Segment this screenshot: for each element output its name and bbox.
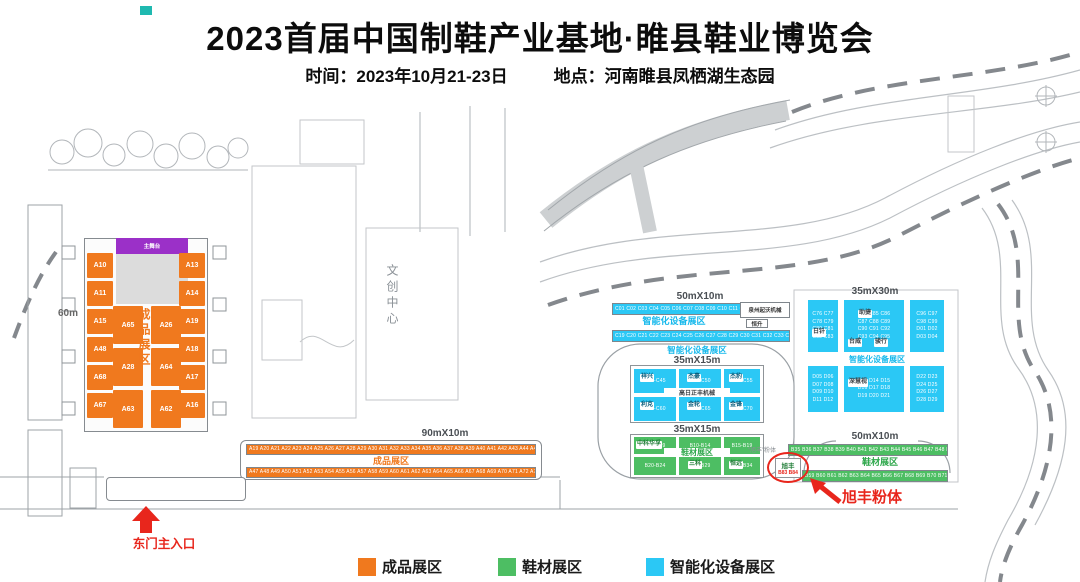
cultural-center-label: 文创中心 bbox=[384, 264, 401, 328]
booth: A10 bbox=[87, 253, 113, 278]
material-strip-zone-label: 鞋材展区 bbox=[838, 457, 922, 467]
exhibitor-chip: 杰豪 bbox=[687, 374, 701, 382]
company-box: 泉州起沃机械 bbox=[740, 302, 790, 318]
finished-swatch bbox=[358, 558, 376, 576]
legend-item-material: 鞋材展区 bbox=[498, 556, 582, 577]
xufeng-highlight-oval bbox=[767, 452, 809, 483]
booth-column: D22 D23 D24 D25 D26 D27 D28 D29 bbox=[910, 366, 944, 412]
company-chip: 恒升 bbox=[746, 319, 768, 328]
material-swatch bbox=[498, 558, 516, 576]
booth-column: C76 C77 C78 C79 C80 C81 C82 C83 bbox=[808, 300, 838, 352]
exhibitor-chip: 助捷 bbox=[858, 310, 872, 318]
page-subtitle: 时间：2023年10月21-23日 地点：河南睢县凤栖湖生态园 bbox=[0, 63, 1080, 85]
south-strip-dims: 90mX10m bbox=[400, 428, 490, 439]
event-time: 时间：2023年10月21-23日 bbox=[305, 62, 507, 87]
booth-column: C96 C97 C98 C99 D01 D02 D03 D04 bbox=[910, 300, 944, 352]
booth: A62 bbox=[151, 390, 181, 428]
exhibitor-chip: 金锋 bbox=[729, 402, 743, 410]
legend-label: 智能化设备展区 bbox=[670, 556, 775, 577]
event-place: 地点：河南睢县凤栖湖生态园 bbox=[554, 62, 775, 87]
exhibitor-chip: 日钎 bbox=[812, 329, 826, 337]
booth: A17 bbox=[179, 365, 205, 390]
exhibitor-chip: 中科华孚 bbox=[636, 441, 662, 449]
smart-strip-zone-label: 智能化设备展区 bbox=[614, 316, 734, 327]
booth: B20-B24 bbox=[634, 457, 676, 475]
booth: A11 bbox=[87, 281, 113, 306]
smart-strip-row2: C19 C20 C21 C22 C23 C24 C25 C26 C27 C28 … bbox=[612, 330, 790, 342]
material-strip-dims: 50mX10m bbox=[830, 431, 920, 441]
expo-map-poster: 2023首届中国制鞋产业基地·睢县鞋业博览会 时间：2023年10月21-23日… bbox=[0, 0, 1080, 582]
zone-b-zone-label: 鞋材展区 bbox=[664, 448, 730, 457]
smart-swatch bbox=[646, 558, 664, 576]
legend-label: 鞋材展区 bbox=[522, 556, 582, 577]
east-gate-structure bbox=[106, 477, 246, 501]
exhibitor-chip: 三科 bbox=[688, 461, 702, 469]
xufeng-arrow-icon bbox=[806, 476, 844, 504]
smart-strip-dims: 50mX10m bbox=[640, 291, 760, 302]
booth: A48 bbox=[87, 337, 113, 362]
hall-width-label: 60m bbox=[58, 308, 78, 319]
zone-a-dims: 35mX15m bbox=[622, 355, 772, 365]
mid-pavilion-zone-label: 智能化设备展区 bbox=[622, 345, 772, 355]
exhibitor-chip: 深慧视 bbox=[848, 379, 868, 387]
south-strip-zone-label: 成品展区 bbox=[246, 456, 536, 466]
east-gate-arrow-icon bbox=[132, 506, 160, 534]
exhibitor-chip: 杰豹 bbox=[729, 374, 743, 382]
zone-b-dims: 35mX15m bbox=[622, 424, 772, 434]
booth: A68 bbox=[87, 365, 113, 390]
booth: A16 bbox=[179, 393, 205, 418]
east-gate-label: 东门主入口 bbox=[112, 538, 216, 551]
booth: A19 bbox=[179, 309, 205, 334]
stage-floor bbox=[116, 254, 188, 304]
booth: A18 bbox=[179, 337, 205, 362]
booth: A64 bbox=[151, 348, 181, 386]
right-block-zone-label: 智能化设备展区 bbox=[832, 355, 922, 365]
exhibitor-chip: 金轮 bbox=[687, 402, 701, 410]
booth: A67 bbox=[87, 393, 113, 418]
booth: A14 bbox=[179, 281, 205, 306]
right-block-dims: 35mX30m bbox=[830, 286, 920, 296]
south-strip-row1: A19 A20 A21 A22 A23 A24 A25 A26 A27 A28 … bbox=[246, 444, 536, 455]
booth: A63 bbox=[113, 390, 143, 428]
legend-item-smart: 智能化设备展区 bbox=[646, 556, 775, 577]
exhibitor-chip: 利克 bbox=[640, 402, 654, 410]
booth-column: D05 D06 D07 D08 D09 D10 D11 D12 bbox=[808, 366, 838, 412]
exhibitor-chip: 祥兴 bbox=[640, 374, 654, 382]
exhibitor-chip: 恒远 bbox=[729, 461, 743, 469]
exhibitor-chip: 骏行 bbox=[874, 339, 888, 347]
booth-column: D13 D14 D15 D16 D17 D18 D19 D20 D21 bbox=[844, 366, 904, 412]
page-title: 2023首届中国制鞋产业基地·睢县鞋业博览会 bbox=[0, 16, 1080, 56]
booth: A15 bbox=[87, 309, 113, 334]
legend-item-finished: 成品展区 bbox=[358, 556, 442, 577]
corner-artifact bbox=[140, 6, 152, 15]
stage-bar: 主舞台 bbox=[116, 238, 188, 254]
booth: A26 bbox=[151, 306, 181, 344]
south-strip-row2: A47 A48 A49 A50 A51 A52 A53 A54 A55 A56 … bbox=[246, 467, 536, 478]
xufeng-annotation: 旭丰粉体 bbox=[842, 490, 938, 505]
booth: A13 bbox=[179, 253, 205, 278]
zone-a-company-label: 高日正丰机械 bbox=[664, 388, 730, 397]
material-strip-row1: B35 B36 B37 B38 B39 B40 B41 B42 B43 B44 … bbox=[788, 444, 948, 456]
exhibitor-chip: 台威 bbox=[848, 339, 862, 347]
finished-hall-zone-label: 成品展区 bbox=[138, 308, 150, 368]
legend-label: 成品展区 bbox=[382, 556, 442, 577]
